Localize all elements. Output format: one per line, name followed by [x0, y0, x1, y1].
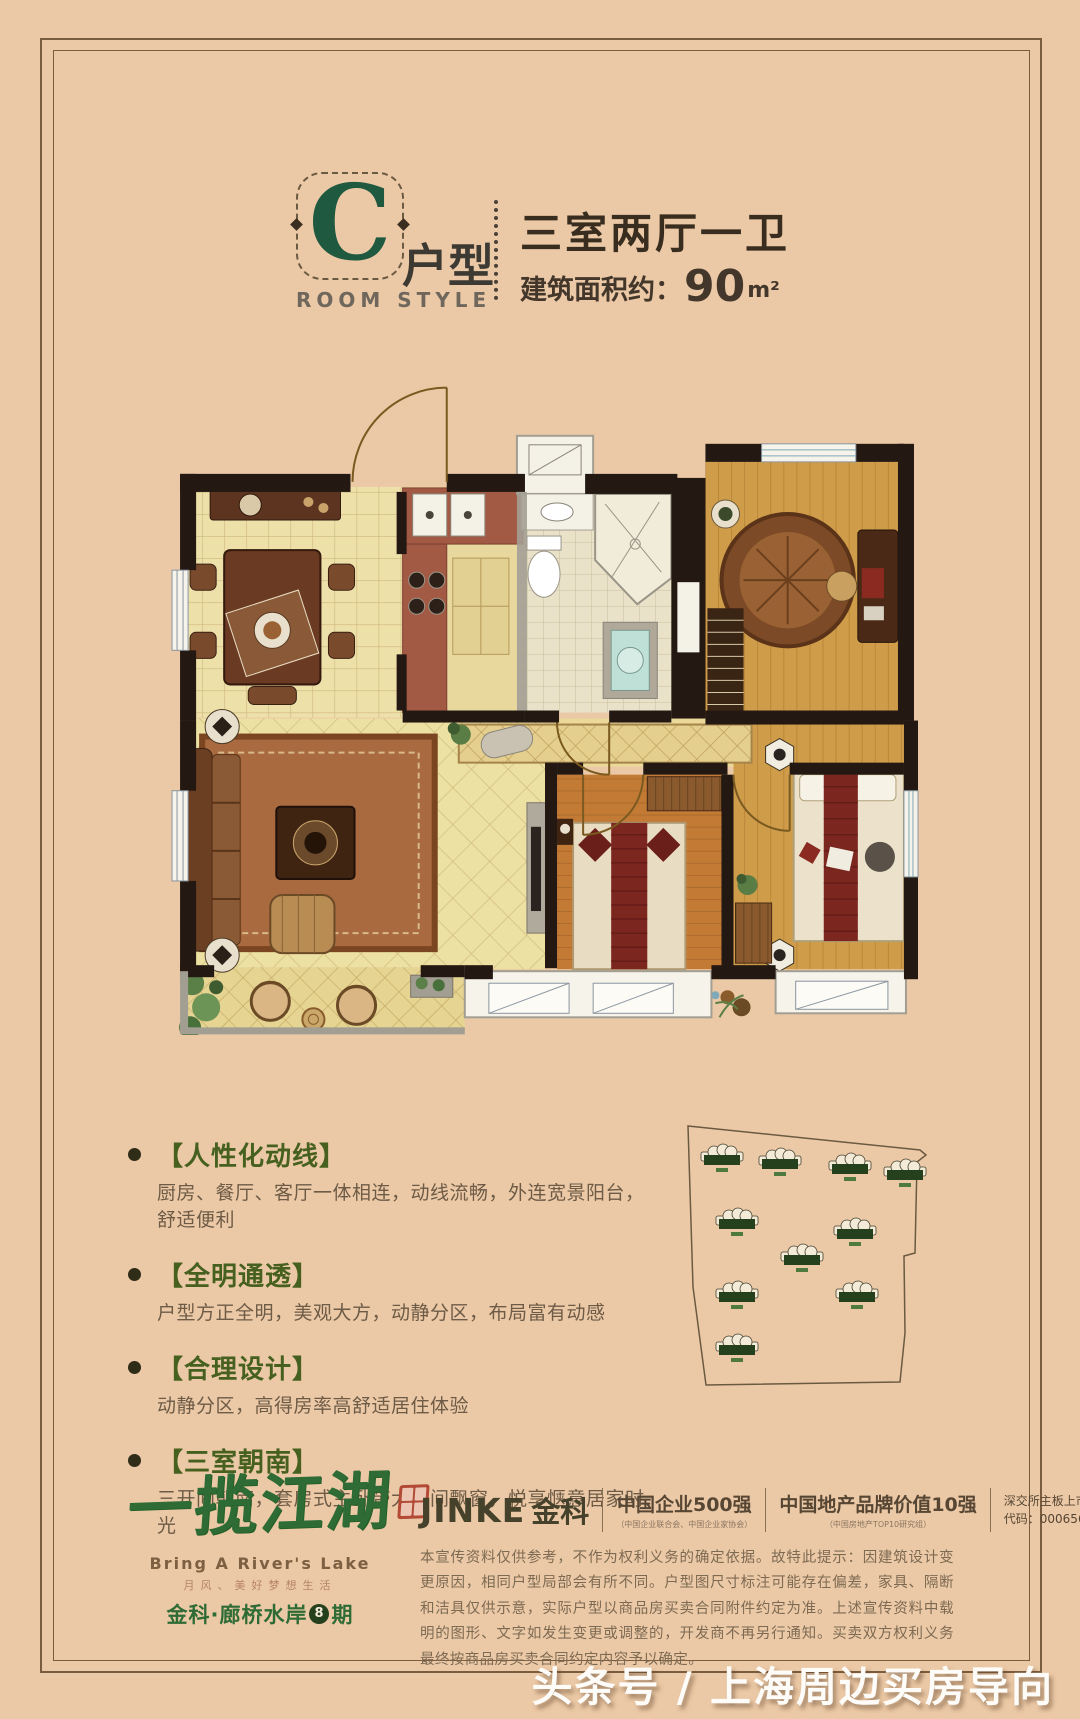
- feature-desc: 厨房、餐厅、客厅一体相连，动线流畅，外连宽景阳台，舒适便利: [157, 1178, 648, 1232]
- washing-machine: [603, 622, 657, 698]
- logo-tagline: 月风、美好梦想生活: [104, 1577, 416, 1593]
- feature-item: 【合理设计】 动静分区，高得房率高舒适居住体验: [128, 1349, 648, 1418]
- bullet-dot: [128, 1361, 141, 1374]
- jinke-logo-cn: 金科: [531, 1489, 589, 1531]
- honor-2: 中国地产品牌价值10强 （中国房地产TOP10研究组）: [779, 1490, 976, 1530]
- bay-window-center: [465, 971, 712, 1017]
- site-building: [836, 1281, 878, 1309]
- area-value: 90: [684, 267, 745, 307]
- layout-title: 三室两厅一卫: [520, 200, 790, 261]
- floor-plan-svg: [158, 380, 920, 1035]
- site-building: [701, 1144, 743, 1172]
- header: C 户型 ROOM STYLE 三室两厅一卫 建筑面积约： 90 m²: [296, 172, 790, 312]
- bullet-dot: [128, 1148, 141, 1161]
- area-label: 建筑面积约：: [520, 268, 682, 307]
- floor-plan: [158, 380, 920, 1035]
- divider: [602, 1488, 603, 1532]
- logo-project-line: 金科·廊桥水岸8期: [104, 1599, 416, 1629]
- developer-bar: JINKE 金科 中国企业500强 （中国企业联合会、中国企业家协会） 中国地产…: [420, 1488, 968, 1532]
- wall-niche: [677, 582, 699, 652]
- room-type-letter: C: [309, 171, 392, 275]
- feature-title: 【全明通透】: [157, 1256, 319, 1293]
- site-building: [884, 1159, 926, 1187]
- phase-number: 8: [309, 1604, 329, 1624]
- project-logo: 一揽江湖 Bring A River's Lake 月风、美好梦想生活 金科·廊…: [104, 1462, 416, 1629]
- washbasin: [521, 494, 593, 530]
- poster: C 户型 ROOM STYLE 三室两厅一卫 建筑面积约： 90 m²: [0, 0, 1080, 1719]
- feature-desc: 动静分区，高得房率高舒适居住体验: [157, 1391, 648, 1418]
- site-building: [829, 1153, 871, 1181]
- logo-english: Bring A River's Lake: [104, 1554, 416, 1573]
- bay-window-right: [776, 971, 906, 1013]
- site-plan-svg: [628, 1100, 968, 1405]
- site-building: [834, 1218, 876, 1246]
- site-building: [716, 1334, 758, 1362]
- area-unit: m²: [747, 276, 780, 307]
- duct-shaft: [517, 436, 593, 494]
- watermark: 头条号 / 上海周边买房导向: [531, 1653, 1054, 1713]
- feature-title: 【人性化动线】: [157, 1136, 346, 1173]
- flower-decor: [711, 990, 750, 1017]
- bullet-dot: [128, 1268, 141, 1281]
- site-building: [781, 1244, 823, 1272]
- stock-listing: 深交所主板上市 代码：000656: [1004, 1492, 1080, 1528]
- feature-title: 【合理设计】: [157, 1349, 319, 1386]
- diamond-marker-right: [397, 218, 410, 231]
- feature-item: 【全明通透】 户型方正全明，美观大方，动静分区，布局富有动感: [128, 1256, 648, 1325]
- feature-desc: 户型方正全明，美观大方，动静分区，布局富有动感: [157, 1298, 648, 1325]
- room-type-label: 户型: [402, 230, 494, 296]
- feature-item: 【人性化动线】 厨房、餐厅、客厅一体相连，动线流畅，外连宽景阳台，舒适便利: [128, 1136, 648, 1232]
- site-buildings: [701, 1144, 926, 1362]
- site-plan: [628, 1100, 968, 1405]
- diamond-marker-left: [290, 218, 303, 231]
- room-type-letter-frame: C: [296, 172, 404, 280]
- site-building: [716, 1281, 758, 1309]
- logo-calligraphy: 一揽江湖: [100, 1457, 419, 1557]
- site-building: [759, 1148, 801, 1176]
- toilet: [527, 536, 561, 597]
- divider: [765, 1488, 766, 1532]
- area-line: 建筑面积约： 90 m²: [520, 267, 790, 307]
- header-dotted-divider: [494, 200, 498, 300]
- honor-1: 中国企业500强 （中国企业联合会、中国企业家协会）: [616, 1490, 752, 1530]
- site-building: [716, 1208, 758, 1236]
- jinke-logo-en: JINKE: [420, 1491, 525, 1530]
- divider: [990, 1488, 991, 1532]
